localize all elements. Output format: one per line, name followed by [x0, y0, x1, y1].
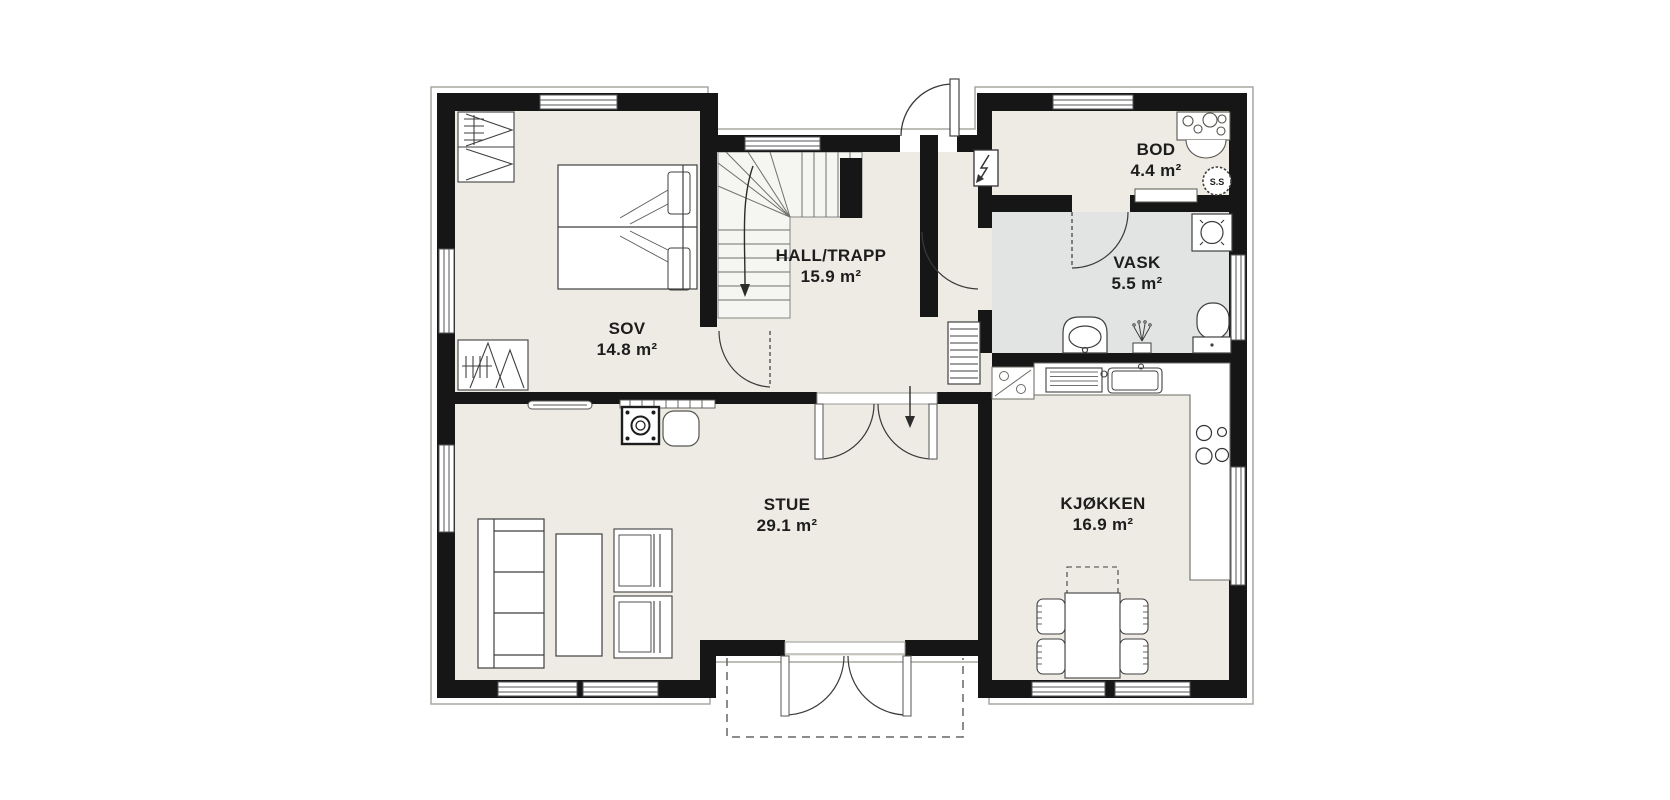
room-name: HALL/TRAPP [751, 245, 911, 266]
room-name: STUE [707, 494, 867, 515]
sofa-icon [478, 519, 544, 668]
porch-outline [727, 658, 963, 737]
window-stue-left [439, 445, 454, 532]
electrical-panel-icon [974, 150, 998, 186]
washing-machine-icon [1192, 214, 1232, 251]
window-bod-top [1053, 95, 1133, 109]
floorplan-graphic [0, 0, 1670, 800]
sideboard-icon [528, 401, 592, 409]
window-sov-top [540, 95, 617, 109]
laundry-sink-icon [1063, 317, 1107, 353]
side-table-icon [663, 411, 699, 446]
floorplan-canvas: SOV 14.8 m² HALL/TRAPP 15.9 m² BOD 4.4 m… [0, 0, 1670, 800]
window-vask-right [1231, 255, 1245, 340]
room-area: 15.9 m² [751, 266, 911, 287]
room-area: 14.8 m² [547, 339, 707, 360]
toilet-icon [1193, 303, 1231, 353]
window-stue-bottom-2 [583, 682, 658, 696]
room-name: KJØKKEN [1023, 493, 1183, 514]
entrance-door [901, 79, 959, 136]
window-kitchen-bottom-1 [1032, 682, 1105, 696]
room-area: 5.5 m² [1057, 273, 1217, 294]
room-label-hall: HALL/TRAPP 15.9 m² [751, 245, 911, 287]
room-label-vask: VASK 5.5 m² [1057, 252, 1217, 294]
armchair-icon-2 [614, 596, 672, 658]
room-name: BOD [1076, 139, 1236, 160]
wardrobe2-icon [458, 340, 528, 390]
radiator-icon [948, 322, 980, 384]
coffee-table-icon [556, 534, 602, 656]
water-heater-label: S.S [1202, 177, 1232, 187]
room-label-bod: BOD 4.4 m² [1076, 139, 1236, 181]
corner-cabinet-icon [992, 367, 1034, 399]
armchair-icon-1 [614, 529, 672, 592]
room-name: VASK [1057, 252, 1217, 273]
room-label-stue: STUE 29.1 m² [707, 494, 867, 536]
terrace-french-doors [781, 642, 911, 716]
window-kitchen-right [1231, 467, 1245, 585]
room-area: 29.1 m² [707, 515, 867, 536]
room-label-kjokken: KJØKKEN 16.9 m² [1023, 493, 1183, 535]
window-stue-bottom-1 [498, 682, 577, 696]
wood-stove-icon [622, 407, 659, 444]
window-hall-top [745, 137, 820, 150]
wardrobe-icon [458, 112, 514, 182]
room-area: 16.9 m² [1023, 514, 1183, 535]
room-label-sov: SOV 14.8 m² [547, 318, 707, 360]
bed-icon [558, 165, 697, 290]
shelf-over-wall [1135, 189, 1197, 202]
window-kitchen-bottom-2 [1115, 682, 1190, 696]
window-sov-left [439, 249, 454, 333]
room-name: SOV [547, 318, 707, 339]
